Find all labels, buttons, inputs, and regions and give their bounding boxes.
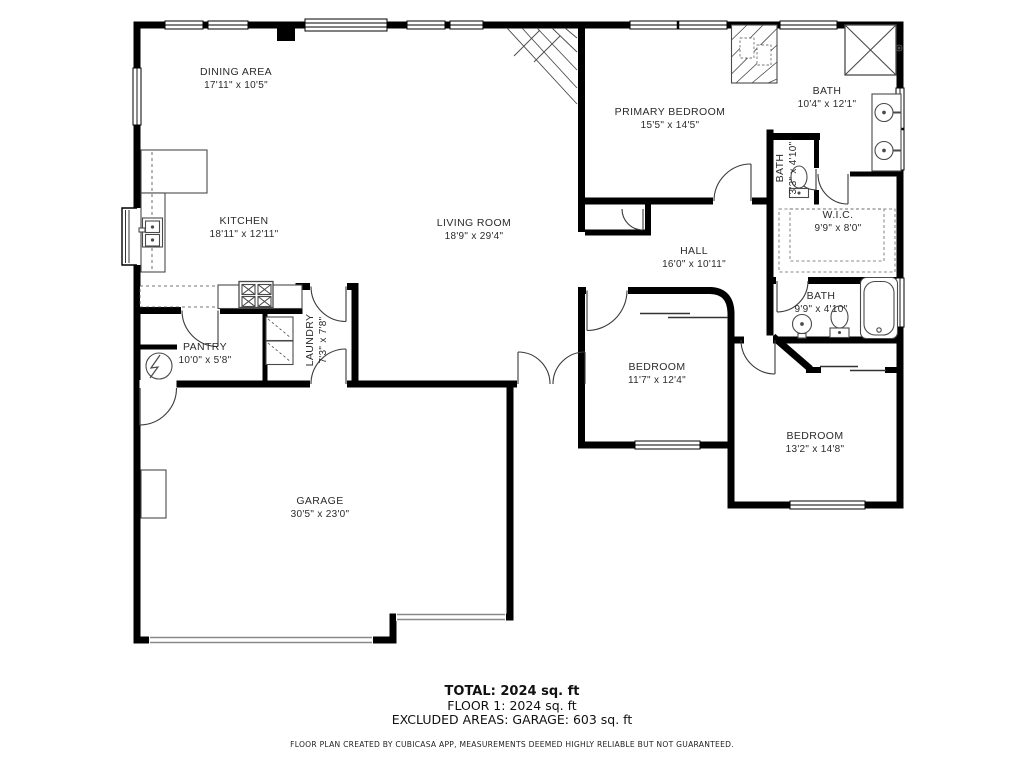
interior-walls: [134, 22, 904, 388]
plan-summary: TOTAL: 2024 sq. ft FLOOR 1: 2024 sq. ft …: [0, 684, 1024, 749]
bedroom2-door: [741, 340, 775, 374]
disclaimer: FLOOR PLAN CREATED BY CUBICASA APP, MEAS…: [0, 740, 1024, 749]
vanity-sinks: [872, 94, 901, 171]
wic-door: [818, 174, 848, 204]
living-double-door-left: [518, 352, 550, 384]
water-heater-icon: [146, 353, 172, 379]
floor-plan-drawing: [0, 0, 1024, 768]
toilet-small-bath: [790, 166, 809, 198]
chimney-bump: [277, 25, 295, 41]
exterior-walls: [134, 22, 904, 644]
floor-plan-page: DINING AREA17'11" x 10'5"KITCHEN18'11" x…: [0, 0, 1024, 768]
primary-bedroom-door: [714, 164, 751, 201]
kitchen-counter: [140, 150, 302, 309]
hall-bath-sink: [793, 315, 812, 339]
stove-cooktop: [239, 282, 273, 308]
garden-window: [122, 208, 142, 265]
washer-dryer: [266, 317, 293, 365]
wall-bedroom1-corner: [710, 291, 731, 314]
wic-shelving: [779, 209, 895, 272]
hall-bath-door: [777, 281, 808, 312]
fixtures: [139, 25, 902, 518]
door-openings: [140, 168, 851, 388]
pantry-door: [182, 311, 218, 347]
floor-area: FLOOR 1: 2024 sq. ft: [0, 699, 1024, 713]
wardrobe-hatch: [732, 25, 778, 83]
kitchen-sink: [139, 218, 163, 247]
laundry-door-top: [311, 287, 346, 322]
garage-doors: [149, 613, 506, 644]
total-area: TOTAL: 2024 sq. ft: [0, 684, 1024, 699]
laundry-door-bottom: [311, 349, 346, 384]
bathtub: [861, 278, 898, 339]
hall-closet-door: [622, 209, 643, 230]
shower: [845, 25, 902, 75]
garage-entry-door: [140, 388, 177, 425]
fireplace-hatch: [507, 28, 577, 104]
excluded-area: EXCLUDED AREAS: GARAGE: 603 sq. ft: [0, 713, 1024, 727]
bedroom1-door: [587, 291, 627, 331]
garage-equipment: [141, 470, 166, 518]
toilet-hall-bath: [830, 306, 849, 338]
